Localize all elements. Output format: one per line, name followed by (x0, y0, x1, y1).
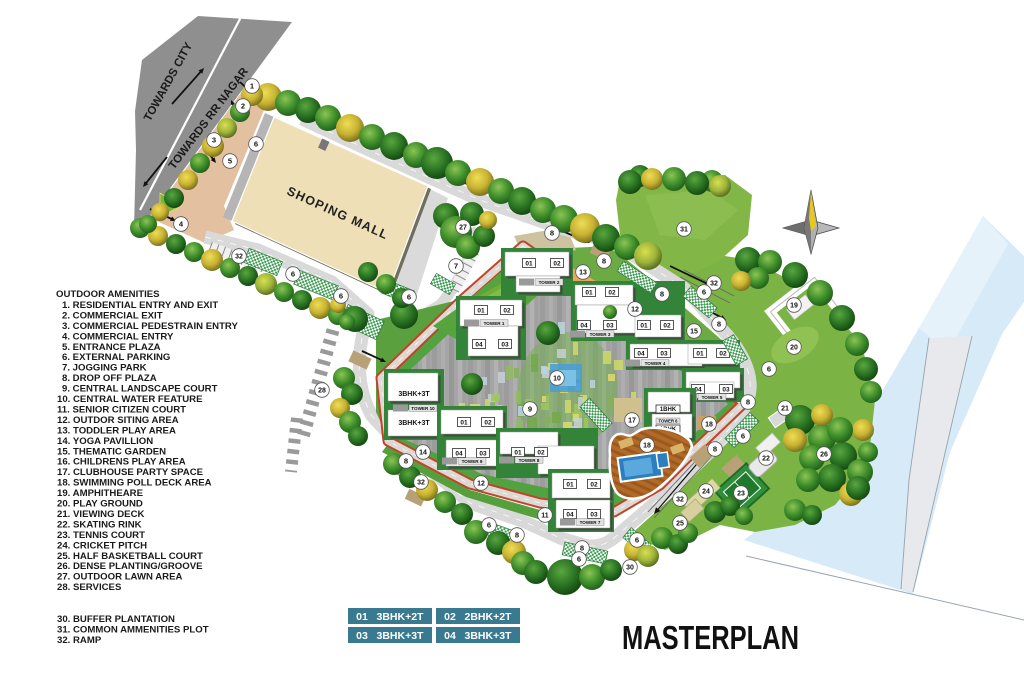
svg-text:1BHK: 1BHK (660, 407, 677, 413)
svg-text:6. EXTERNAL PARKING: 6. EXTERNAL PARKING (62, 352, 170, 363)
svg-text:03: 03 (356, 630, 368, 642)
svg-text:01: 01 (356, 611, 368, 623)
svg-text:12: 12 (631, 307, 639, 314)
svg-text:8. DROP OFF PLAZA: 8. DROP OFF PLAZA (62, 373, 157, 384)
svg-text:MASTERPLAN: MASTERPLAN (622, 619, 799, 656)
svg-text:TOWER 2: TOWER 2 (539, 280, 560, 285)
svg-text:19. AMPHITHEARE: 19. AMPHITHEARE (57, 488, 144, 499)
svg-text:10: 10 (553, 376, 561, 383)
svg-text:21: 21 (781, 406, 789, 413)
svg-text:2BHK+2T: 2BHK+2T (465, 611, 513, 623)
svg-text:02: 02 (537, 449, 545, 456)
svg-text:3. COMMERCIAL PEDESTRAIN ENTRY: 3. COMMERCIAL PEDESTRAIN ENTRY (62, 321, 239, 332)
svg-text:23: 23 (737, 491, 745, 498)
svg-text:5. ENTRANCE PLAZA: 5. ENTRANCE PLAZA (62, 342, 161, 353)
svg-text:30. BUFFER PLANTATION: 30. BUFFER PLANTATION (57, 614, 175, 625)
svg-text:30: 30 (626, 565, 634, 572)
svg-text:12: 12 (477, 481, 485, 488)
svg-text:10. CENTRAL WATER FEATURE: 10. CENTRAL WATER FEATURE (57, 394, 203, 405)
svg-text:TOWER 10: TOWER 10 (411, 406, 435, 411)
svg-text:24: 24 (702, 489, 710, 496)
svg-text:25. HALF BASKETBALL COURT: 25. HALF BASKETBALL COURT (57, 551, 203, 562)
svg-text:14: 14 (419, 450, 427, 457)
svg-text:32. RAMP: 32. RAMP (57, 635, 102, 646)
svg-text:01: 01 (525, 260, 533, 267)
svg-text:4. COMMERCIAL ENTRY: 4. COMMERCIAL ENTRY (62, 331, 174, 342)
svg-text:20: 20 (790, 345, 798, 352)
svg-text:8: 8 (515, 531, 519, 540)
svg-text:16. CHILDRENS PLAY AREA: 16. CHILDRENS PLAY AREA (57, 457, 186, 468)
svg-text:17. CLUBHOUSE PARTY SPACE: 17. CLUBHOUSE PARTY SPACE (57, 467, 204, 478)
svg-text:3: 3 (212, 136, 216, 145)
svg-text:8: 8 (713, 445, 717, 454)
svg-text:3BHK+2T: 3BHK+2T (377, 611, 425, 623)
svg-text:6: 6 (291, 270, 295, 279)
svg-text:6: 6 (407, 293, 411, 302)
svg-text:04: 04 (444, 630, 456, 642)
svg-text:3BHK+3T: 3BHK+3T (465, 630, 513, 642)
svg-text:TOWER 3: TOWER 3 (590, 332, 611, 337)
svg-text:27: 27 (459, 225, 467, 232)
svg-text:8: 8 (717, 320, 721, 329)
svg-text:3BHK+3T: 3BHK+3T (398, 391, 430, 398)
svg-text:02: 02 (503, 307, 511, 314)
svg-text:9. CENTRAL LANDSCAPE COURT: 9. CENTRAL LANDSCAPE COURT (62, 384, 218, 395)
svg-text:03: 03 (590, 511, 598, 518)
svg-text:02: 02 (719, 350, 727, 357)
svg-text:03: 03 (501, 341, 509, 348)
svg-text:28: 28 (318, 388, 326, 395)
svg-text:13: 13 (579, 270, 587, 277)
svg-text:02: 02 (608, 289, 616, 296)
svg-text:04: 04 (566, 511, 574, 518)
svg-text:6: 6 (767, 365, 771, 374)
svg-text:2: 2 (241, 102, 245, 111)
svg-text:TOWER 8: TOWER 8 (519, 458, 540, 463)
svg-text:03: 03 (722, 386, 730, 393)
svg-text:6: 6 (339, 292, 343, 301)
svg-text:6: 6 (577, 555, 581, 564)
svg-text:6: 6 (254, 140, 258, 149)
svg-text:TOWER 4: TOWER 4 (645, 361, 666, 366)
svg-text:18: 18 (705, 422, 713, 429)
svg-text:7: 7 (454, 262, 458, 271)
svg-text:9: 9 (528, 405, 532, 414)
svg-text:04: 04 (475, 341, 483, 348)
svg-text:02: 02 (444, 611, 456, 623)
svg-text:21. VIEWING DECK: 21. VIEWING DECK (57, 509, 144, 520)
svg-text:19: 19 (790, 303, 798, 310)
svg-text:3BHK+3T: 3BHK+3T (377, 630, 425, 642)
svg-text:02: 02 (553, 260, 561, 267)
svg-text:28. SERVICES: 28. SERVICES (57, 582, 122, 593)
svg-text:15. THEMATIC GARDEN: 15. THEMATIC GARDEN (57, 446, 166, 457)
svg-text:TOWER 6: TOWER 6 (658, 418, 678, 423)
svg-text:6: 6 (741, 432, 745, 441)
svg-text:2. COMMERCIAL EXIT: 2. COMMERCIAL EXIT (62, 310, 163, 321)
svg-text:6: 6 (635, 536, 639, 545)
svg-text:32: 32 (676, 497, 684, 504)
svg-text:18. SWIMMING POLL DECK AREA: 18. SWIMMING POLL DECK AREA (57, 478, 212, 489)
svg-text:13. TODDLER PLAY AREA: 13. TODDLER PLAY AREA (57, 425, 176, 436)
svg-text:OUTDOOR AMENITIES: OUTDOOR AMENITIES (56, 289, 160, 300)
svg-text:03: 03 (479, 450, 487, 457)
svg-text:01: 01 (640, 322, 648, 329)
svg-text:01: 01 (460, 419, 468, 426)
svg-text:27. OUTDOOR LAWN AREA: 27. OUTDOOR LAWN AREA (57, 572, 183, 583)
svg-text:TOWER 7: TOWER 7 (580, 520, 601, 525)
svg-text:8: 8 (660, 290, 664, 299)
svg-text:31: 31 (680, 227, 688, 234)
svg-text:8: 8 (746, 398, 750, 407)
svg-text:TOWER 1: TOWER 1 (484, 321, 505, 326)
svg-text:01: 01 (696, 350, 704, 357)
svg-text:01: 01 (514, 449, 522, 456)
svg-text:8: 8 (602, 257, 606, 266)
svg-text:04: 04 (455, 450, 463, 457)
svg-text:04: 04 (637, 350, 645, 357)
svg-text:32: 32 (235, 254, 243, 261)
svg-text:01: 01 (566, 481, 574, 488)
svg-text:14. YOGA PAVILLION: 14. YOGA PAVILLION (57, 436, 153, 447)
svg-text:12. OUTDOR SITING AREA: 12. OUTDOR SITING AREA (57, 415, 179, 426)
svg-text:15: 15 (690, 329, 698, 336)
svg-text:20. PLAY GROUND: 20. PLAY GROUND (57, 499, 143, 510)
svg-text:24. CRICKET PITCH: 24. CRICKET PITCH (57, 540, 147, 551)
svg-text:7. JOGGING PARK: 7. JOGGING PARK (62, 363, 147, 374)
svg-text:02: 02 (484, 419, 492, 426)
svg-text:17: 17 (628, 418, 636, 425)
svg-text:TOWER 5: TOWER 5 (702, 395, 723, 400)
svg-text:8: 8 (550, 229, 554, 238)
svg-text:32: 32 (417, 480, 425, 487)
svg-text:26. DENSE PLANTING/GROOVE: 26. DENSE PLANTING/GROOVE (57, 561, 203, 572)
svg-text:3BHK+3T: 3BHK+3T (398, 420, 430, 427)
svg-text:04: 04 (580, 322, 588, 329)
svg-text:32: 32 (710, 281, 718, 288)
svg-text:22: 22 (762, 456, 770, 463)
svg-text:01: 01 (477, 307, 485, 314)
svg-text:02: 02 (663, 322, 671, 329)
svg-text:23. TENNIS COURT: 23. TENNIS COURT (57, 530, 145, 541)
svg-text:01: 01 (585, 289, 593, 296)
svg-text:TOWER 9: TOWER 9 (462, 459, 483, 464)
svg-text:02: 02 (590, 481, 598, 488)
svg-text:31. COMMON AMMENITIES PLOT: 31. COMMON AMMENITIES PLOT (57, 625, 209, 636)
svg-text:11. SENIOR CITIZEN COURT: 11. SENIOR CITIZEN COURT (57, 405, 186, 416)
svg-text:11: 11 (541, 513, 549, 520)
svg-text:03: 03 (606, 322, 614, 329)
svg-text:26: 26 (820, 452, 828, 459)
svg-text:8: 8 (404, 457, 408, 466)
svg-text:6: 6 (702, 288, 706, 297)
svg-text:18: 18 (643, 443, 651, 450)
svg-text:25: 25 (676, 521, 684, 528)
svg-text:8: 8 (580, 544, 584, 553)
svg-text:6: 6 (487, 521, 491, 530)
svg-text:22. SKATING RINK: 22. SKATING RINK (57, 519, 142, 530)
svg-text:03: 03 (660, 350, 668, 357)
svg-text:1. RESIDENTIAL ENTRY AND EXIT: 1. RESIDENTIAL ENTRY AND EXIT (62, 300, 218, 311)
